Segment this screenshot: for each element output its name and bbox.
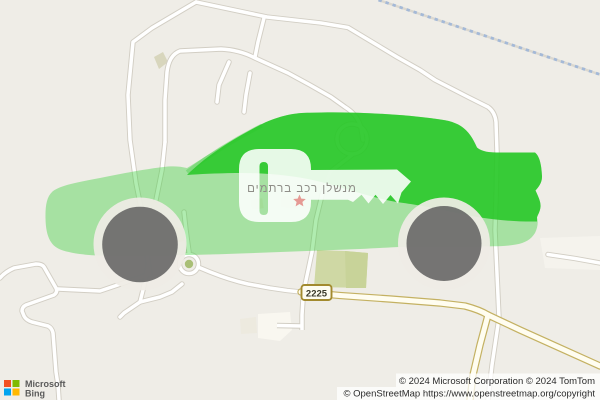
svg-text:Microsoft: Microsoft [25,379,66,389]
svg-text:© OpenStreetMap https://www.op: © OpenStreetMap https://www.openstreetma… [344,389,596,400]
svg-text:© 2024 Microsoft Corporation ©: © 2024 Microsoft Corporation © 2024 TomT… [399,376,595,387]
svg-text:מנשלן רכב ברתמים: מנשלן רכב ברתמים [247,182,357,195]
svg-text:Bing: Bing [25,389,45,399]
svg-text:2225: 2225 [306,289,328,300]
